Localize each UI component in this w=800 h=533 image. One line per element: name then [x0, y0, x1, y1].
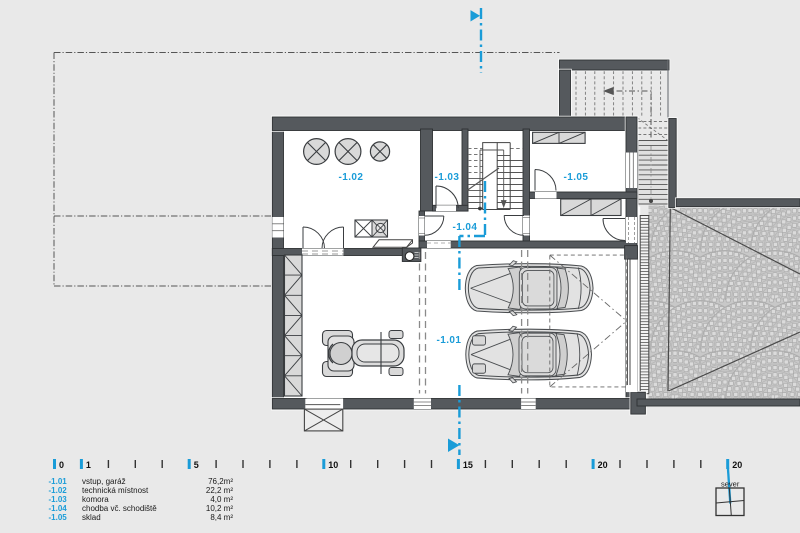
svg-text:4,0 m²: 4,0 m²: [210, 495, 233, 504]
svg-text:5: 5: [194, 460, 199, 470]
svg-text:-1.04: -1.04: [453, 222, 478, 233]
svg-text:10: 10: [328, 460, 338, 470]
svg-text:vstup, garáž: vstup, garáž: [82, 477, 126, 486]
svg-text:-1.03: -1.03: [49, 495, 68, 504]
svg-text:sklad: sklad: [82, 513, 101, 522]
svg-text:76,2m²: 76,2m²: [208, 477, 233, 486]
svg-text:technická místnost: technická místnost: [82, 486, 149, 495]
svg-text:1: 1: [86, 460, 91, 470]
svg-text:20: 20: [598, 460, 608, 470]
svg-text:-1.05: -1.05: [564, 172, 589, 183]
svg-text:15: 15: [463, 460, 473, 470]
svg-text:-1.03: -1.03: [435, 172, 460, 183]
svg-text:20: 20: [732, 460, 742, 470]
svg-text:chodba vč. schodiště: chodba vč. schodiště: [82, 504, 157, 513]
svg-text:10,2 m²: 10,2 m²: [206, 504, 233, 513]
svg-text:-1.05: -1.05: [49, 513, 68, 522]
svg-text:22,2 m²: 22,2 m²: [206, 486, 233, 495]
svg-text:8,4 m²: 8,4 m²: [210, 513, 233, 522]
svg-text:-1.01: -1.01: [437, 335, 462, 346]
svg-text:-1.04: -1.04: [49, 504, 68, 513]
svg-text:0: 0: [59, 460, 64, 470]
svg-text:sever: sever: [721, 480, 740, 489]
svg-text:-1.02: -1.02: [339, 172, 364, 183]
svg-text:-1.01: -1.01: [49, 477, 68, 486]
svg-text:-1.02: -1.02: [49, 486, 68, 495]
svg-text:komora: komora: [82, 495, 109, 504]
